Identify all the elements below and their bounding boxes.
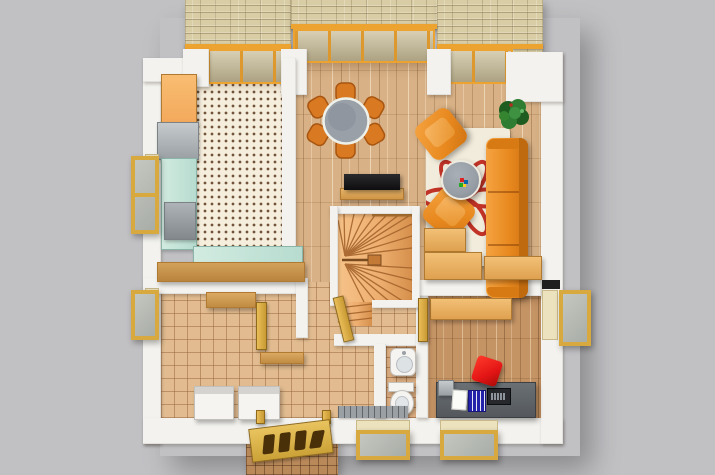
stairs-wall-left <box>330 206 338 306</box>
wall-hall-divider <box>296 278 308 338</box>
doormat <box>338 406 408 418</box>
sofa-armrest-bottom <box>487 287 519 297</box>
window-study-panel <box>542 290 558 340</box>
desk-binders <box>468 390 486 412</box>
laptop-keys <box>491 393 506 400</box>
wall-exterior-left <box>143 58 161 444</box>
pillar-bay-right <box>427 49 451 95</box>
dryer-top-edge <box>239 387 279 394</box>
study-sideboard <box>430 298 512 320</box>
kitchen-hood <box>157 122 199 160</box>
dining-table-set <box>300 75 392 167</box>
potted-plant <box>494 96 532 132</box>
sofa-seam <box>488 191 519 193</box>
sideboard-black-top <box>344 174 400 190</box>
desk-paper <box>451 390 467 411</box>
room-kitchen-floor <box>195 82 291 252</box>
floor-plan-render <box>0 0 715 475</box>
door-panel-slot <box>309 430 325 449</box>
coffee-table <box>441 160 481 200</box>
window-rail <box>135 193 155 197</box>
wall-exterior-right <box>541 52 563 444</box>
sink-tap <box>402 351 406 355</box>
stairs-wall-right <box>412 206 420 302</box>
desk-laptop <box>487 388 511 405</box>
armchair-seat <box>423 116 457 149</box>
wall-kitchen-dining-divider <box>282 58 296 248</box>
window-kitchen-open-sash <box>131 156 159 234</box>
cabinet-upper <box>424 228 466 252</box>
sink-bowl <box>396 356 413 373</box>
kitchen-tall-cabinet <box>161 74 197 124</box>
sofa-seam <box>488 244 519 246</box>
window-bottom2-open-sash <box>440 430 498 460</box>
stairs-wall-bottom-right <box>372 300 420 308</box>
kitchen-stove <box>164 202 196 240</box>
door-utility-open <box>256 302 267 350</box>
door-panel-slot <box>278 432 291 453</box>
cabinet-row-b <box>484 256 542 280</box>
kitchen-bar-counter <box>157 262 305 282</box>
sofa-armrest-top <box>487 139 519 149</box>
wall-corner-top-right <box>506 52 563 102</box>
door-panel-slot <box>262 434 275 455</box>
window-study-open-sash <box>559 290 591 346</box>
window-utility-open-sash <box>131 290 159 340</box>
wall-recess-dark <box>542 280 560 289</box>
cabinet-row-a <box>424 252 482 280</box>
hall-step-shelf <box>260 352 304 364</box>
wc-sink <box>390 348 416 376</box>
washer-top-edge <box>195 387 233 394</box>
utility-closet-shelf <box>206 292 256 308</box>
window-bottom1-open-sash <box>356 430 410 460</box>
glazing-left <box>205 49 287 84</box>
door-panel-slot <box>294 430 307 451</box>
wall-exterior-bottom <box>143 418 563 444</box>
coffee-table-decor <box>443 162 483 202</box>
door-study-open <box>418 298 428 342</box>
washing-machine <box>194 386 234 420</box>
front-door-jamb-left <box>256 410 265 424</box>
glazing-middle <box>293 29 435 63</box>
stairs-wall-top <box>330 206 418 214</box>
